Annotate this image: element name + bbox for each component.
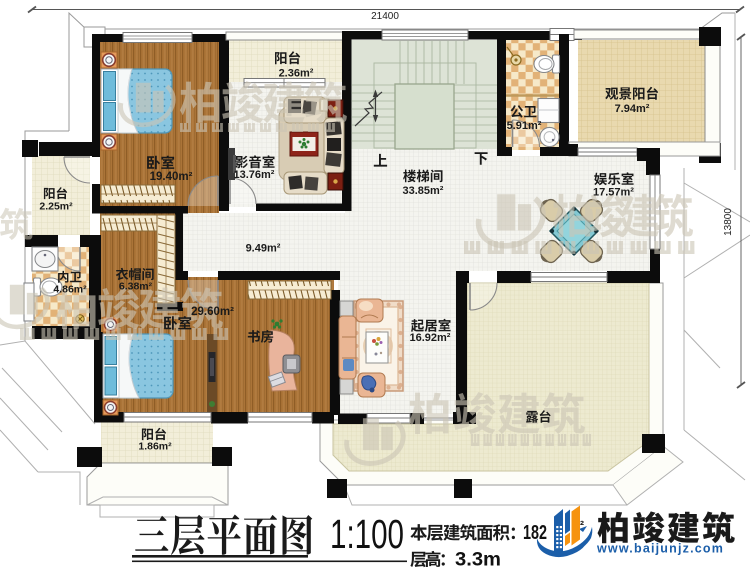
svg-text:33.85m²: 33.85m² bbox=[403, 185, 444, 197]
svg-text:16.92m²: 16.92m² bbox=[410, 332, 451, 344]
svg-text:17.57m²: 17.57m² bbox=[593, 187, 634, 199]
svg-text:www.baijunjz.com: www.baijunjz.com bbox=[596, 542, 724, 556]
svg-text:2.25m²: 2.25m² bbox=[39, 201, 73, 213]
svg-text:3.3m: 3.3m bbox=[455, 550, 501, 571]
svg-text:9.49m²: 9.49m² bbox=[246, 243, 281, 255]
svg-text:13.76m²: 13.76m² bbox=[234, 169, 275, 181]
svg-text:1.86m²: 1.86m² bbox=[138, 441, 172, 453]
svg-text:21400: 21400 bbox=[371, 11, 399, 22]
svg-text:4.86m²: 4.86m² bbox=[53, 284, 87, 296]
svg-text:13800: 13800 bbox=[723, 208, 734, 236]
svg-text:19.40m²: 19.40m² bbox=[150, 171, 193, 183]
svg-text:2.36m²: 2.36m² bbox=[279, 68, 314, 80]
svg-text:²: ² bbox=[580, 518, 584, 532]
svg-text:7.94m²: 7.94m² bbox=[615, 103, 650, 115]
svg-text:6.38m²: 6.38m² bbox=[119, 281, 153, 293]
svg-text:5.91m²: 5.91m² bbox=[507, 120, 542, 132]
svg-text:182: 182 bbox=[523, 522, 547, 544]
svg-text:1:100: 1:100 bbox=[330, 511, 404, 557]
svg-text:29.60m²: 29.60m² bbox=[191, 306, 234, 318]
